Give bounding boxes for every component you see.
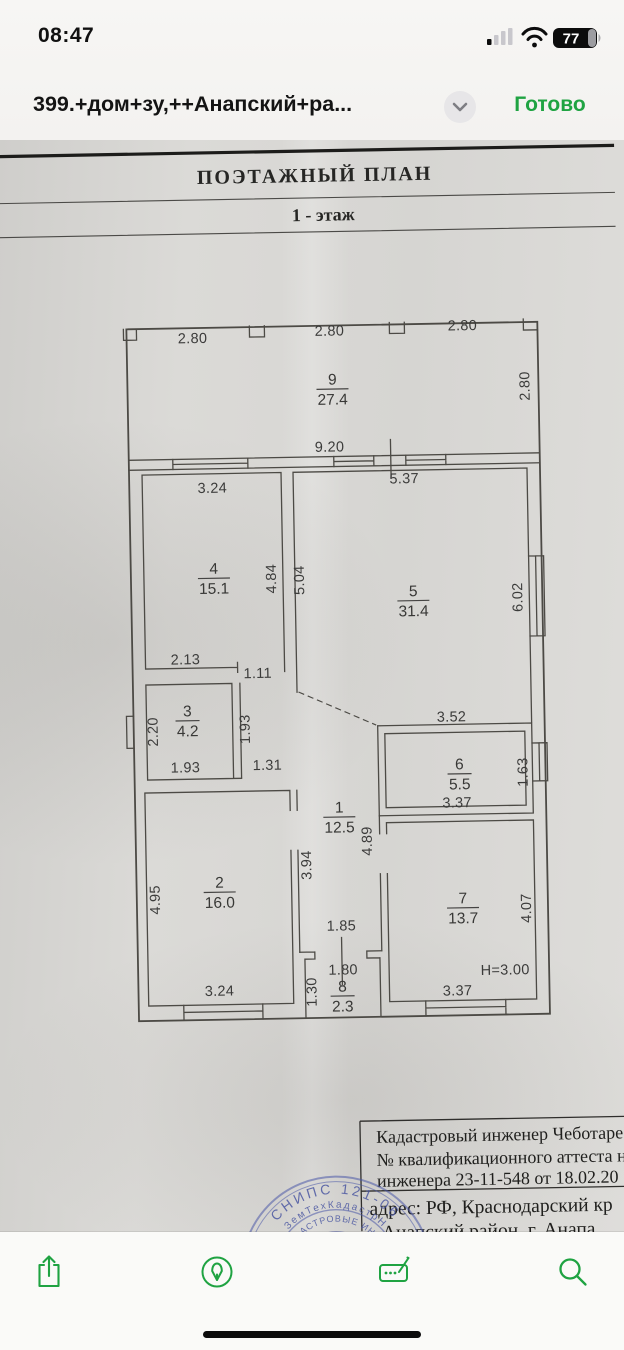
dimension-label: 6.02 bbox=[510, 582, 527, 612]
signal-icon bbox=[487, 28, 513, 45]
room-label: 2 bbox=[215, 875, 224, 892]
dimension-label: 2.80 bbox=[178, 331, 208, 348]
room-fraction-bar bbox=[397, 600, 429, 601]
room-label: 9 bbox=[328, 371, 337, 388]
dimension-label: 5.37 bbox=[389, 471, 419, 488]
room-fraction-bar bbox=[323, 817, 355, 818]
dimension-label: Н=3.00 bbox=[481, 962, 530, 979]
dimension-label: 5.04 bbox=[292, 565, 309, 595]
plan-header: ПОЭТАЖНЫЙ ПЛАН 1 - этаж bbox=[0, 145, 616, 237]
share-icon bbox=[44, 1257, 55, 1277]
room-label: 27.4 bbox=[317, 391, 348, 409]
cadastral-text-line: Кадастровый инженер Чеботаре bbox=[376, 1122, 623, 1147]
dimension-label: 1.93 bbox=[171, 760, 201, 777]
dimension-label: 3.52 bbox=[437, 709, 467, 726]
battery-icon: 77 bbox=[553, 28, 601, 48]
room-label: 4.2 bbox=[177, 723, 199, 740]
status-icons: 77 bbox=[466, 14, 616, 54]
dimension-label: 4.95 bbox=[148, 885, 165, 915]
room-label: 5 bbox=[409, 583, 418, 600]
plan-title: ПОЭТАЖНЫЙ ПЛАН bbox=[197, 162, 433, 189]
floor-plan-scan: ПОЭТАЖНЫЙ ПЛАН 1 - этаж bbox=[0, 140, 624, 1232]
dimension-label: 4.89 bbox=[360, 826, 377, 856]
dimension-label: 1.30 bbox=[304, 977, 321, 1007]
plan-labels: 2.802.802.802.809.205.373.244.845.042.13… bbox=[137, 317, 545, 1019]
dimension-label: 3.37 bbox=[443, 983, 473, 1000]
document-preview: ПОЭТАЖНЫЙ ПЛАН 1 - этаж bbox=[0, 140, 624, 1232]
room-label: 4 bbox=[209, 561, 218, 578]
dimension-label: 2.20 bbox=[145, 717, 162, 747]
room-fraction-bar bbox=[204, 892, 236, 893]
dimension-label: 1.11 bbox=[243, 666, 272, 683]
dimension-label: 4.84 bbox=[264, 564, 281, 594]
dimension-label: 2.80 bbox=[448, 318, 478, 335]
dimension-label: 2.13 bbox=[171, 652, 201, 669]
dimension-label: 2.80 bbox=[315, 323, 345, 340]
dimension-label: 2.80 bbox=[517, 371, 534, 401]
room-label: 2.3 bbox=[332, 998, 354, 1015]
dimension-label: 3.94 bbox=[299, 850, 316, 880]
search-button[interactable] bbox=[551, 1250, 595, 1294]
markup-button[interactable] bbox=[195, 1250, 239, 1294]
room-label: 16.0 bbox=[205, 894, 236, 912]
document-title: 399.+дом+зу,++Анапский+ра... bbox=[33, 92, 433, 117]
dimension-label: 3.24 bbox=[197, 481, 227, 498]
share-button[interactable] bbox=[27, 1250, 71, 1294]
room-label: 7 bbox=[458, 890, 467, 907]
dimension-label: 3.24 bbox=[205, 983, 235, 1000]
room-label: 6 bbox=[455, 756, 464, 773]
done-button[interactable]: Готово bbox=[502, 93, 598, 117]
battery-percent: 77 bbox=[563, 31, 580, 48]
room-label: 5.5 bbox=[449, 776, 471, 793]
room-fraction-bar bbox=[447, 907, 479, 908]
dimension-label: 1.93 bbox=[237, 714, 254, 744]
room-label: 31.4 bbox=[398, 603, 429, 621]
room-label: 15.1 bbox=[199, 581, 229, 599]
markup-icon bbox=[203, 1258, 232, 1287]
room-fraction-bar bbox=[316, 389, 348, 390]
title-dropdown-button[interactable] bbox=[444, 91, 476, 123]
chevron-down-icon bbox=[452, 102, 468, 112]
room-label: 8 bbox=[338, 978, 347, 995]
dimension-label: 9.20 bbox=[315, 439, 345, 456]
room-label: 3 bbox=[183, 703, 192, 720]
room-fraction-bar bbox=[198, 578, 230, 579]
screen: 08:47 77 399.+дом+зу,++Анапский+ра... bbox=[0, 0, 624, 1350]
floor-plan-walls bbox=[119, 319, 552, 1022]
home-indicator[interactable] bbox=[203, 1331, 421, 1338]
dimension-label: 4.07 bbox=[519, 893, 536, 923]
dimension-label: 1.80 bbox=[328, 962, 358, 979]
dimension-label: 1.31 bbox=[253, 758, 283, 775]
status-time: 08:47 bbox=[38, 24, 94, 48]
room-label: 1 bbox=[335, 799, 344, 816]
wifi-icon bbox=[523, 28, 546, 47]
plan-floor-label: 1 - этаж bbox=[292, 204, 356, 225]
top-bar: 08:47 77 399.+дом+зу,++Анапский+ра... bbox=[0, 0, 624, 140]
room-label: 13.7 bbox=[448, 910, 478, 928]
fill-sign-button[interactable] bbox=[372, 1250, 416, 1294]
dimension-label: 3.37 bbox=[442, 795, 472, 812]
dimension-label: 1.63 bbox=[515, 757, 532, 787]
bottom-toolbar bbox=[0, 1232, 624, 1350]
dimension-label: 1.85 bbox=[326, 918, 356, 935]
room-label: 12.5 bbox=[324, 819, 354, 837]
